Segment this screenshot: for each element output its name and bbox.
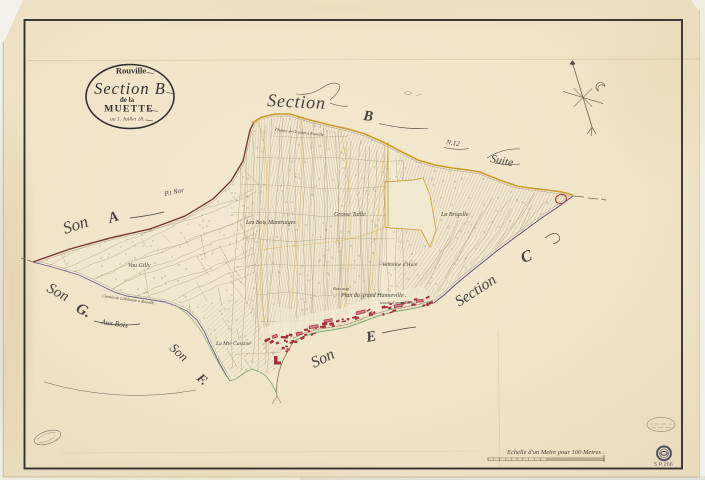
svg-text:B: B — [362, 108, 375, 125]
svg-text:La Brigolle: La Brigolle — [440, 212, 469, 218]
svg-text:Vallonne d'Huin: Vallonne d'Huin — [382, 262, 418, 268]
svg-text:Vau Gilly: Vau Gilly — [128, 263, 151, 269]
svg-text:Les Bois Mantraiges: Les Bois Mantraiges — [245, 220, 296, 226]
svg-text:La Mte Cassine: La Mte Cassine — [215, 341, 251, 347]
svg-text:Grosse Taille: Grosse Taille — [334, 212, 366, 218]
svg-text:au 1. Juillet 18..: au 1. Juillet 18.. — [110, 117, 146, 123]
svg-text:souche d'apres Ruelle: souche d'apres Ruelle — [380, 300, 415, 305]
svg-text:Echelle d'un Metre pour 100 Me: Echelle d'un Metre pour 100 Metres . — [506, 449, 604, 456]
svg-text:Plan du grand Hanneville .: Plan du grand Hanneville . — [340, 293, 407, 299]
svg-text:Bois aug.: Bois aug. — [333, 286, 350, 291]
svg-text:Rouville: Rouville — [116, 66, 146, 76]
svg-text:Section: Section — [267, 90, 327, 113]
svg-text:5 P 266: 5 P 266 — [654, 462, 673, 468]
svg-text:MUETTE: MUETTE — [104, 104, 154, 115]
